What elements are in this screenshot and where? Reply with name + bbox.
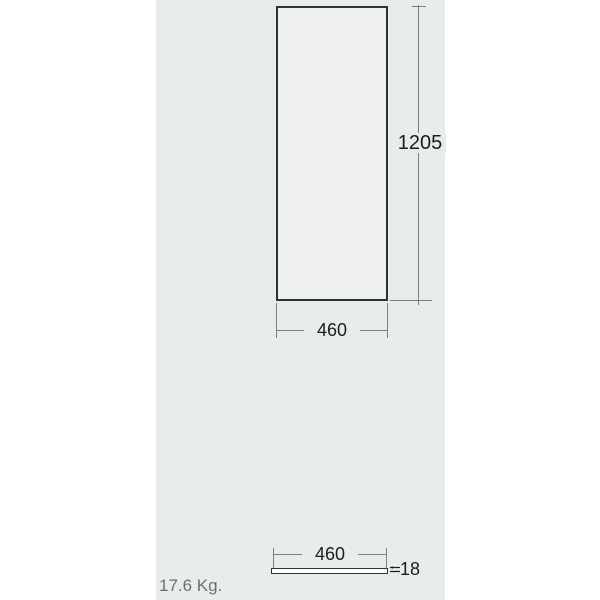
height-dimension-top-tick [412, 6, 426, 7]
side-width-dimension-label: 460 [302, 545, 358, 563]
width-dimension-label: 460 [304, 321, 360, 339]
side-width-dimension-left-tick [273, 548, 274, 568]
width-dimension-right-extension [387, 303, 388, 338]
height-dimension-label: 1205 [394, 133, 446, 153]
weight-label: 17.6 Kg. [159, 577, 222, 595]
height-dimension-line [418, 5, 419, 305]
side-width-dimension-right-tick [386, 548, 387, 568]
side-view-bar [271, 568, 388, 574]
height-dimension-bottom-extension [390, 300, 432, 301]
thickness-dimension-label: 18 [400, 560, 420, 578]
thickness-arrows-icon [390, 563, 400, 574]
product-dimension-drawing: 1205 460 460 18 17.6 Kg. [0, 0, 600, 600]
front-view-outline [276, 6, 388, 301]
width-dimension-left-extension [276, 303, 277, 338]
